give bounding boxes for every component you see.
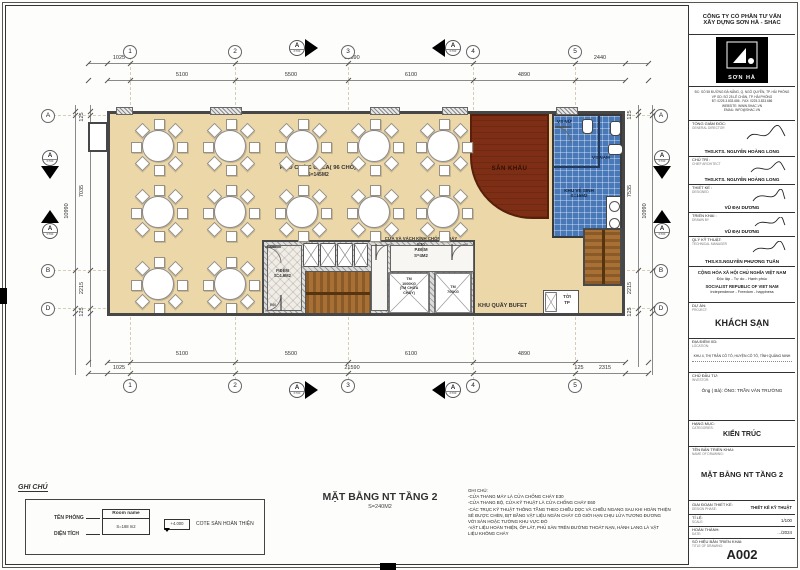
shaft-box xyxy=(320,243,336,267)
location-label-en: LOCATION: xyxy=(692,345,792,349)
dim-label: 21590 xyxy=(332,365,372,371)
role-drawn-by: TRIỂN KHAI : DRAWN BY VŨ ĐẠI DƯƠNG xyxy=(689,213,795,237)
section-letter: AKT00 xyxy=(654,150,670,166)
door-swing xyxy=(264,246,282,264)
legend-arrow xyxy=(86,534,100,535)
chair xyxy=(383,155,399,171)
phase-section: GIAI ĐOẠN THIẾT KẾ:DESIGN PHASE: THIẾT K… xyxy=(689,501,795,515)
chair xyxy=(462,142,473,153)
role-name: THS.KTS. NGUYỄN HOÀNG LONG xyxy=(689,177,795,182)
project-value: KHÁCH SẠN xyxy=(692,318,792,328)
pdem-right-area: S=4M2 xyxy=(414,253,428,258)
dim-label: 7035 xyxy=(79,176,85,206)
hoist-shaft xyxy=(545,292,557,312)
chair xyxy=(370,231,381,242)
chair xyxy=(370,185,381,196)
chair xyxy=(131,208,142,219)
chair xyxy=(416,208,427,219)
drawing-number-section: SỐ HIỆU BẢN TRIỂN KHAI: TITLE OF DRAWING… xyxy=(689,539,795,565)
wall-hatch xyxy=(210,107,242,115)
level-value: +4.000 xyxy=(165,521,189,526)
wc-male-label: VS NAM xyxy=(592,155,610,160)
level-label: COTE SÀN HOÀN THIỆN xyxy=(196,521,254,527)
round-table xyxy=(274,184,330,240)
chair xyxy=(439,231,450,242)
dim-line-top-segments xyxy=(107,80,625,81)
chair xyxy=(177,142,188,153)
chair xyxy=(439,165,450,176)
chair xyxy=(167,293,183,309)
section-arrow-icon xyxy=(41,166,59,179)
grid-bubble-D: D xyxy=(41,302,55,316)
section-marker-A: AKT00 xyxy=(41,210,59,239)
scale-section: TỈ LỆ:SCALE: 1/100 xyxy=(689,515,795,527)
project-section: DỰ ÁN: PROJECT: KHÁCH SẠN xyxy=(689,303,795,339)
section-letter: AKT00 xyxy=(654,223,670,239)
grid-bubble-B-r: B xyxy=(654,264,668,278)
pdem-left-area: S=4.6M2 xyxy=(274,273,291,278)
section-arrow-icon xyxy=(432,381,445,399)
round-table xyxy=(202,184,258,240)
section-marker-A: AKT00 xyxy=(289,381,318,399)
chair xyxy=(154,231,165,242)
chair xyxy=(393,208,404,219)
section-arrow-icon xyxy=(653,210,671,223)
stair-landing xyxy=(306,292,370,295)
toilet-icon xyxy=(608,144,623,155)
drawing-name-section: TÊN BẢN TRIỂN KHAI: NAME OF DRAWING: MẶT… xyxy=(689,447,795,501)
round-table xyxy=(346,184,402,240)
chair xyxy=(239,293,255,309)
grid-bubble-A: A xyxy=(41,109,55,123)
dim-label: 4890 xyxy=(504,351,544,357)
grid-bubble-D-r: D xyxy=(654,302,668,316)
section-letter: AKT00 xyxy=(289,382,305,398)
round-table xyxy=(346,118,402,174)
notes-block: GHI CHÚ: -CỬA THANG MÁY LÀ CỬA CHỐNG CHÁ… xyxy=(468,488,690,538)
dim-label: 5500 xyxy=(271,72,311,78)
chair xyxy=(226,257,237,268)
dim-line-bottom-segments xyxy=(107,362,625,363)
chair xyxy=(311,155,327,171)
table-top xyxy=(142,130,174,162)
legend-box: TÊN PHÒNG DIỆN TÍCH Room name S=168 m2 +… xyxy=(25,499,265,555)
wc-zone-size: S=16M2 xyxy=(570,193,587,198)
grid-bubble-A-r: A xyxy=(654,109,668,123)
address-line: ĐC: SỐ 55 ĐƯỜNG ĐÀ NẴNG, Q. NGÔ QUYỀN, T… xyxy=(692,88,792,95)
date-label-en: DATE: xyxy=(692,533,719,537)
legend-area-value: S=168 m2 xyxy=(103,524,149,529)
chair xyxy=(370,119,381,130)
dim-label: 125 xyxy=(627,107,633,123)
chair xyxy=(154,303,165,314)
door-swing xyxy=(375,243,393,261)
section-letter: AKT00 xyxy=(445,40,461,56)
chair xyxy=(321,208,332,219)
chair xyxy=(452,221,468,237)
role-technical-manager: QLÝ KỸ THUẬT: TECHNICAL MANAGER THS.KS.N… xyxy=(689,237,795,267)
dim-label: 6100 xyxy=(391,351,431,357)
table-top xyxy=(286,130,318,162)
project-label-en: PROJECT: xyxy=(692,309,792,313)
chair xyxy=(311,221,327,237)
phase-value: THIẾT KẾ KỸ THUẬT xyxy=(751,505,792,510)
section-arrow-icon xyxy=(653,166,671,179)
shaft-box xyxy=(354,243,368,267)
lift2-line: 700KG xyxy=(447,290,459,294)
role-name: VŨ ĐẠI DƯƠNG xyxy=(689,229,795,234)
phase-label-en: DESIGN PHASE: xyxy=(692,508,733,512)
drawing-name-value: MẶT BẰNG NT TẦNG 2 xyxy=(692,470,792,479)
chair xyxy=(321,142,332,153)
dim-label: 125 xyxy=(79,109,85,125)
chair xyxy=(167,155,183,171)
grid-bubble-2: 2 xyxy=(228,45,242,59)
chair xyxy=(154,185,165,196)
section-arrow-icon xyxy=(305,381,318,399)
section-letter: AKT00 xyxy=(42,150,58,166)
role-name: THS.KS.NGUYỄN PHƯƠNG TUẤN xyxy=(689,259,795,264)
republic-line: Independence - Freedom - happiness xyxy=(692,290,792,294)
section-marker-A: AKT00 xyxy=(289,39,318,57)
chair xyxy=(298,231,309,242)
role-name: VŨ ĐẠI DƯƠNG xyxy=(689,205,795,210)
wall-hatch xyxy=(370,107,400,115)
chair xyxy=(154,119,165,130)
chair xyxy=(154,165,165,176)
legend-room-name-value: Room name xyxy=(103,511,149,519)
grid-bubble-1: 1 xyxy=(123,45,137,59)
dim-label: 2315 xyxy=(590,365,620,371)
republic-line: Độc lập - Tự do - Hạnh phúc xyxy=(692,276,792,281)
stair-main xyxy=(305,271,371,315)
round-table xyxy=(130,118,186,174)
stair-rail xyxy=(602,230,605,284)
lift1-line: 1000KG xyxy=(402,282,416,286)
wall-right xyxy=(622,111,625,316)
dim-label: 4890 xyxy=(504,72,544,78)
chair xyxy=(298,165,309,176)
location-section: ĐỊA ĐIỂM XD: LOCATION: KHU 4, THỊ TRẤN C… xyxy=(689,339,795,373)
grid-bubble-5: 5 xyxy=(568,45,582,59)
table-top xyxy=(358,130,390,162)
wall-bottom xyxy=(107,313,625,316)
chair xyxy=(226,165,237,176)
shaft-box xyxy=(303,243,319,267)
chair xyxy=(226,231,237,242)
section-arrow-icon xyxy=(41,210,59,223)
investor-value: Ông ( Bà): ÔNG: TRẦN VĂN TRƯỜNG xyxy=(692,388,792,393)
legend-title: GHI CHÚ xyxy=(18,484,48,492)
chair xyxy=(226,303,237,314)
chair xyxy=(393,142,404,153)
round-table xyxy=(130,184,186,240)
chair xyxy=(177,208,188,219)
chair xyxy=(462,208,473,219)
chair xyxy=(439,119,450,130)
dim-label: 5100 xyxy=(162,72,202,78)
toilet-icon xyxy=(582,119,593,134)
grid-bubble-1b: 1 xyxy=(123,379,137,393)
grid-bubble-4: 4 xyxy=(466,45,480,59)
table-top xyxy=(142,268,174,300)
lift1-line: (TM CHỮA xyxy=(400,286,419,290)
category-value: KIẾN TRÚC xyxy=(692,431,792,438)
drawing-number-value: A002 xyxy=(692,547,792,562)
wall-hatch xyxy=(556,107,578,115)
elevator-700-label: TM700KG xyxy=(434,285,472,294)
grid-bubble-2b: 2 xyxy=(228,379,242,393)
food-hoist-label: TỜITP xyxy=(557,294,577,305)
wall-hatch xyxy=(442,107,468,115)
grid-bubble-5b: 5 xyxy=(568,379,582,393)
drawing-caption-area: S=240M2 xyxy=(280,504,480,510)
buffet-label: KHU QUẦY BUFET xyxy=(478,303,527,309)
table-top xyxy=(214,130,246,162)
signature xyxy=(749,217,787,228)
dim-label: 10990 xyxy=(642,196,648,226)
table-top xyxy=(358,196,390,228)
table-top xyxy=(427,130,459,162)
role-name: THS.KTS. NGUYỄN HOÀNG LONG xyxy=(689,149,795,154)
logo-glyph-icon xyxy=(726,41,758,69)
signature xyxy=(743,125,787,143)
hoist-line: TP xyxy=(564,300,570,305)
legend-room-box: Room name S=168 m2 xyxy=(102,509,150,535)
table-top xyxy=(214,268,246,300)
wc-partition-h xyxy=(554,166,600,168)
dim-label: 2440 xyxy=(580,55,620,61)
stair-right xyxy=(583,228,622,286)
dim-label: 7535 xyxy=(627,176,633,206)
dim-label: 125 xyxy=(79,304,85,320)
hoist-line: TỜI xyxy=(563,294,571,299)
chair xyxy=(249,208,260,219)
role-general-director: TỔNG GIÁM ĐỐC: GENERAL DIRECTOR THS.KTS.… xyxy=(689,121,795,157)
drawing-sheet: 1025 21590 2440 5100 5500 6100 4890 5100… xyxy=(0,0,800,570)
signature xyxy=(747,189,787,203)
section-marker-A: AKT00 xyxy=(653,150,671,179)
chair xyxy=(226,119,237,130)
chair xyxy=(239,155,255,171)
note-line: -CÁC TRỤC KỸ THUẬT THÔNG TẦNG THEO CHIỀU… xyxy=(468,507,690,513)
chair xyxy=(275,208,286,219)
chair xyxy=(416,142,427,153)
door-swing xyxy=(451,243,469,261)
table-top xyxy=(142,196,174,228)
grid-bubble-3b: 3 xyxy=(341,379,355,393)
grid-bubble-B: B xyxy=(41,264,55,278)
level-triangle-icon xyxy=(164,528,170,532)
chair xyxy=(383,221,399,237)
section-letter: AKT00 xyxy=(445,382,461,398)
legend-arrow xyxy=(86,518,100,519)
dim-label: 10990 xyxy=(64,196,70,226)
chair xyxy=(167,221,183,237)
date-section: HOÀN THÀNH:DATE: .../2024 xyxy=(689,527,795,539)
shaft-box xyxy=(337,243,353,267)
dim-label: 2215 xyxy=(627,273,633,303)
glass-e30: E30 xyxy=(417,242,425,247)
investor-label-en: INVESTOR: xyxy=(692,379,792,383)
scale-value: 1/100 xyxy=(781,518,792,523)
chair xyxy=(347,142,358,153)
elevator-fire-label: TM1000KG(TM CHỮACHÁY) xyxy=(388,277,430,295)
chair xyxy=(347,208,358,219)
investor-section: CHỦ ĐẦU TƯ: INVESTOR: Ông ( Bà): ÔNG: TR… xyxy=(689,373,795,421)
role-designed: THIẾT KẾ : DESIGNED VŨ ĐẠI DƯƠNG xyxy=(689,185,795,213)
title-block: CÔNG TY CỔ PHẦN TƯ VẤN XÂY DỰNG SƠN HÀ -… xyxy=(688,5,795,565)
dim-line-bottom-overall xyxy=(88,373,648,374)
table-top xyxy=(286,196,318,228)
republic-line: CỘNG HÒA XÃ HỘI CHỦ NGHĨA VIỆT NAM xyxy=(692,270,792,275)
chair xyxy=(131,142,142,153)
company-logo: SƠN HÀ xyxy=(716,37,768,83)
entry-bump xyxy=(88,122,108,152)
company-logo-section: SƠN HÀ xyxy=(689,35,795,87)
chair xyxy=(275,142,286,153)
grid-bubble-3: 3 xyxy=(341,45,355,59)
dim-line-right-segments xyxy=(638,105,639,367)
section-marker-A: AKT00 xyxy=(653,210,671,239)
dim-label: 125 xyxy=(569,365,589,371)
republic-section: CỘNG HÒA XÃ HỘI CHỦ NGHĨA VIỆT NAM Độc l… xyxy=(689,267,795,303)
registration-mark-left xyxy=(0,288,7,304)
section-arrow-icon xyxy=(432,39,445,57)
toilet-icon xyxy=(610,121,621,136)
company-header: CÔNG TY CỔ PHẦN TƯ VẤN XÂY DỰNG SƠN HÀ -… xyxy=(689,5,795,35)
dim-label: 5100 xyxy=(162,351,202,357)
chair xyxy=(439,185,450,196)
wc-female-label: VS NỮ xyxy=(557,119,572,124)
level-mark: +4.000 xyxy=(164,519,190,530)
chair xyxy=(249,142,260,153)
chair xyxy=(203,142,214,153)
pdem-left-label: P.ĐỆMS=4.6M2 xyxy=(265,268,300,278)
dim-label: 2215 xyxy=(79,273,85,303)
chair xyxy=(370,165,381,176)
wall-hatch xyxy=(116,107,133,115)
section-marker-A: AKT00 xyxy=(41,150,59,179)
signature xyxy=(747,161,787,175)
round-table xyxy=(274,118,330,174)
company-name-line2: XÂY DỰNG SƠN HÀ - SHAC xyxy=(692,20,792,26)
door-swing xyxy=(264,294,282,312)
logo-text: SƠN HÀ xyxy=(716,75,768,81)
chair xyxy=(298,185,309,196)
chair xyxy=(226,185,237,196)
role-chief-architect: CHỦ TRÌ : CHIEF ARCHITECT THS.KTS. NGUYỄ… xyxy=(689,157,795,185)
round-table xyxy=(415,184,471,240)
lift1-line: CHÁY) xyxy=(403,291,415,295)
company-address: ĐC: SỐ 55 ĐƯỜNG ĐÀ NẴNG, Q. NGÔ QUYỀN, T… xyxy=(689,87,795,121)
section-marker-A: AKT00 xyxy=(432,39,461,57)
category-section: HẠNG MỤC: CATEGORIES: KIẾN TRÚC xyxy=(689,421,795,447)
category-label-en: CATEGORIES: xyxy=(692,427,792,431)
sink-icon xyxy=(609,201,620,212)
wc-zone-label: KHU VỆ SINHS=16M2 xyxy=(554,188,604,198)
dim-line-left-overall xyxy=(75,105,76,375)
table-top xyxy=(214,196,246,228)
dim-label: 5500 xyxy=(271,351,311,357)
republic-line: SOCIALIST REPUBLIC OF VIET NAM xyxy=(692,284,792,289)
stage-label: SÂN KHẤU xyxy=(470,166,549,172)
round-table xyxy=(415,118,471,174)
address-line: EMAIL: INFO@SHAC.VN xyxy=(692,108,792,113)
drawing-name-label-en: NAME OF DRAWING: xyxy=(692,453,792,457)
location-value: KHU 4, THỊ TRẤN CÔ TÔ, HUYỆN CÔ TÔ, TỈNH… xyxy=(692,354,792,362)
section-arrow-icon xyxy=(305,39,318,57)
chair xyxy=(298,119,309,130)
round-table xyxy=(202,256,258,312)
pdem-right-name: P.ĐỆM xyxy=(414,247,427,252)
chair xyxy=(239,221,255,237)
chair xyxy=(249,280,260,291)
section-marker-A: AKT00 xyxy=(432,381,461,399)
section-letter: AKT00 xyxy=(42,223,58,239)
chair xyxy=(203,280,214,291)
dim-line-top-overall xyxy=(88,63,648,64)
drawing-caption-title: MẶT BẰNG NT TẦNG 2 xyxy=(280,491,480,503)
food-hoist-box: TỜITP xyxy=(543,290,579,315)
section-letter: AKT00 xyxy=(289,40,305,56)
chair xyxy=(177,280,188,291)
lift1-line: TM xyxy=(406,277,411,281)
legend-area-label: DIỆN TÍCH xyxy=(54,531,79,537)
chair xyxy=(452,155,468,171)
table-top xyxy=(427,196,459,228)
dim-line-right-overall xyxy=(652,105,653,375)
round-table xyxy=(202,118,258,174)
chair xyxy=(203,208,214,219)
wall-top xyxy=(107,111,625,114)
registration-mark-bottom xyxy=(380,563,396,570)
door-swing xyxy=(554,126,572,144)
note-line: LIỆU KHÔNG CHÁY xyxy=(468,531,690,537)
legend-room-name-label: TÊN PHÒNG xyxy=(54,515,84,521)
grid-bubble-4b: 4 xyxy=(466,379,480,393)
scale-label-en: SCALE: xyxy=(692,521,703,525)
dim-label: 6100 xyxy=(391,72,431,78)
chair xyxy=(131,280,142,291)
dim-label: 125 xyxy=(627,304,633,320)
round-table xyxy=(130,256,186,312)
wc-partition-v xyxy=(598,116,600,168)
date-value: .../2024 xyxy=(777,530,792,535)
signature xyxy=(747,241,787,255)
lift2-line: TM xyxy=(450,285,455,289)
chair xyxy=(154,257,165,268)
